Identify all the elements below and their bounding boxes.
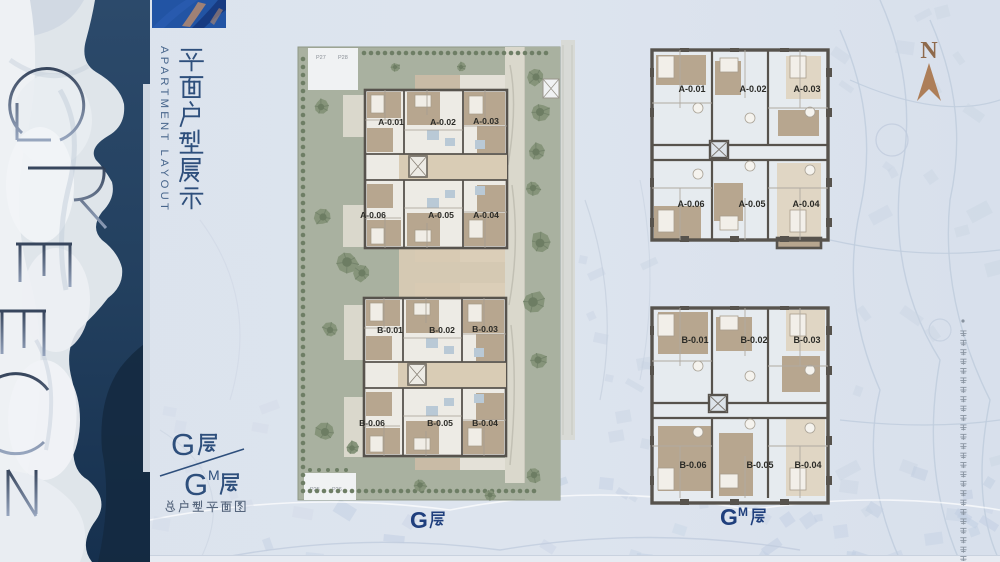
svg-text:A-0.03: A-0.03: [473, 116, 499, 126]
svg-text:A-0.06: A-0.06: [360, 210, 386, 220]
svg-text:B-0.06: B-0.06: [679, 460, 706, 470]
svg-text:M: M: [208, 467, 220, 483]
svg-text:B-0.02: B-0.02: [740, 335, 767, 345]
svg-text:B-0.05: B-0.05: [746, 460, 773, 470]
svg-text:B-0.04: B-0.04: [794, 460, 821, 470]
svg-text:B-0.01: B-0.01: [681, 335, 708, 345]
svg-text:B-0.04: B-0.04: [472, 418, 498, 428]
svg-text:G: G: [184, 467, 208, 502]
svg-text:B-0.03: B-0.03: [793, 335, 820, 345]
svg-text:N: N: [920, 38, 938, 64]
svg-text:A-0.04: A-0.04: [473, 210, 499, 220]
svg-text:G: G: [410, 507, 428, 533]
svg-text:B-0.03: B-0.03: [472, 324, 498, 334]
svg-text:A-0.03: A-0.03: [793, 84, 820, 94]
svg-text:M: M: [738, 505, 748, 519]
svg-text:P27: P27: [316, 55, 326, 61]
svg-text:A-0.01: A-0.01: [678, 84, 705, 94]
svg-text:A-0.02: A-0.02: [430, 117, 456, 127]
svg-text:A-0.05: A-0.05: [738, 199, 765, 209]
svg-text:B-0.05: B-0.05: [427, 418, 453, 428]
svg-text:B-0.01: B-0.01: [377, 325, 403, 335]
svg-text:A-0.01: A-0.01: [378, 117, 404, 127]
svg-text:A-0.05: A-0.05: [428, 210, 454, 220]
svg-text:A-0.06: A-0.06: [677, 199, 704, 209]
svg-text:P28: P28: [338, 55, 348, 61]
svg-text:G: G: [171, 427, 195, 462]
svg-text:B-0.06: B-0.06: [359, 418, 385, 428]
svg-text:G: G: [720, 504, 738, 530]
svg-text:A-0.04: A-0.04: [792, 199, 819, 209]
svg-text:B-0.02: B-0.02: [429, 325, 455, 335]
svg-text:A-0.02: A-0.02: [739, 84, 766, 94]
